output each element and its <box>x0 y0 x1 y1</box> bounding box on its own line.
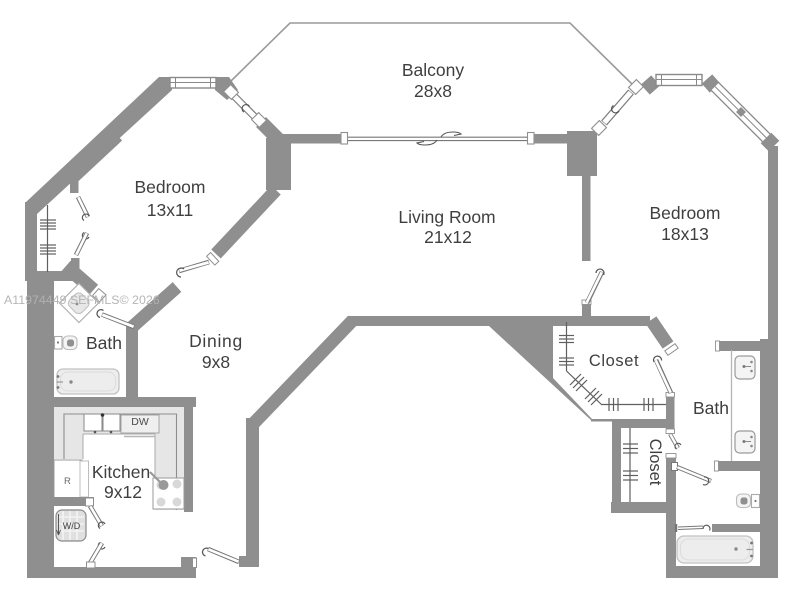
svg-text:R: R <box>64 476 71 487</box>
svg-text:13x11: 13x11 <box>147 200 193 220</box>
svg-text:W/D: W/D <box>63 521 81 531</box>
svg-text:Bedroom: Bedroom <box>649 203 720 223</box>
svg-text:A11974449 SEFMLS© 2026: A11974449 SEFMLS© 2026 <box>4 293 160 307</box>
svg-text:18x13: 18x13 <box>661 224 709 244</box>
svg-text:28x8: 28x8 <box>414 81 452 101</box>
svg-text:Bath: Bath <box>86 333 122 353</box>
svg-text:21x12: 21x12 <box>424 227 472 247</box>
svg-text:DW: DW <box>131 416 149 428</box>
svg-text:Bath: Bath <box>693 398 729 418</box>
svg-text:9x12: 9x12 <box>104 482 142 502</box>
svg-text:Closet: Closet <box>646 439 664 486</box>
svg-text:Kitchen: Kitchen <box>92 462 150 482</box>
svg-text:Bedroom: Bedroom <box>134 177 205 197</box>
svg-text:Closet: Closet <box>589 352 639 370</box>
svg-text:Balcony: Balcony <box>402 60 465 80</box>
svg-text:9x8: 9x8 <box>202 352 230 372</box>
svg-text:Living Room: Living Room <box>398 207 495 227</box>
svg-text:Dining: Dining <box>189 331 243 351</box>
